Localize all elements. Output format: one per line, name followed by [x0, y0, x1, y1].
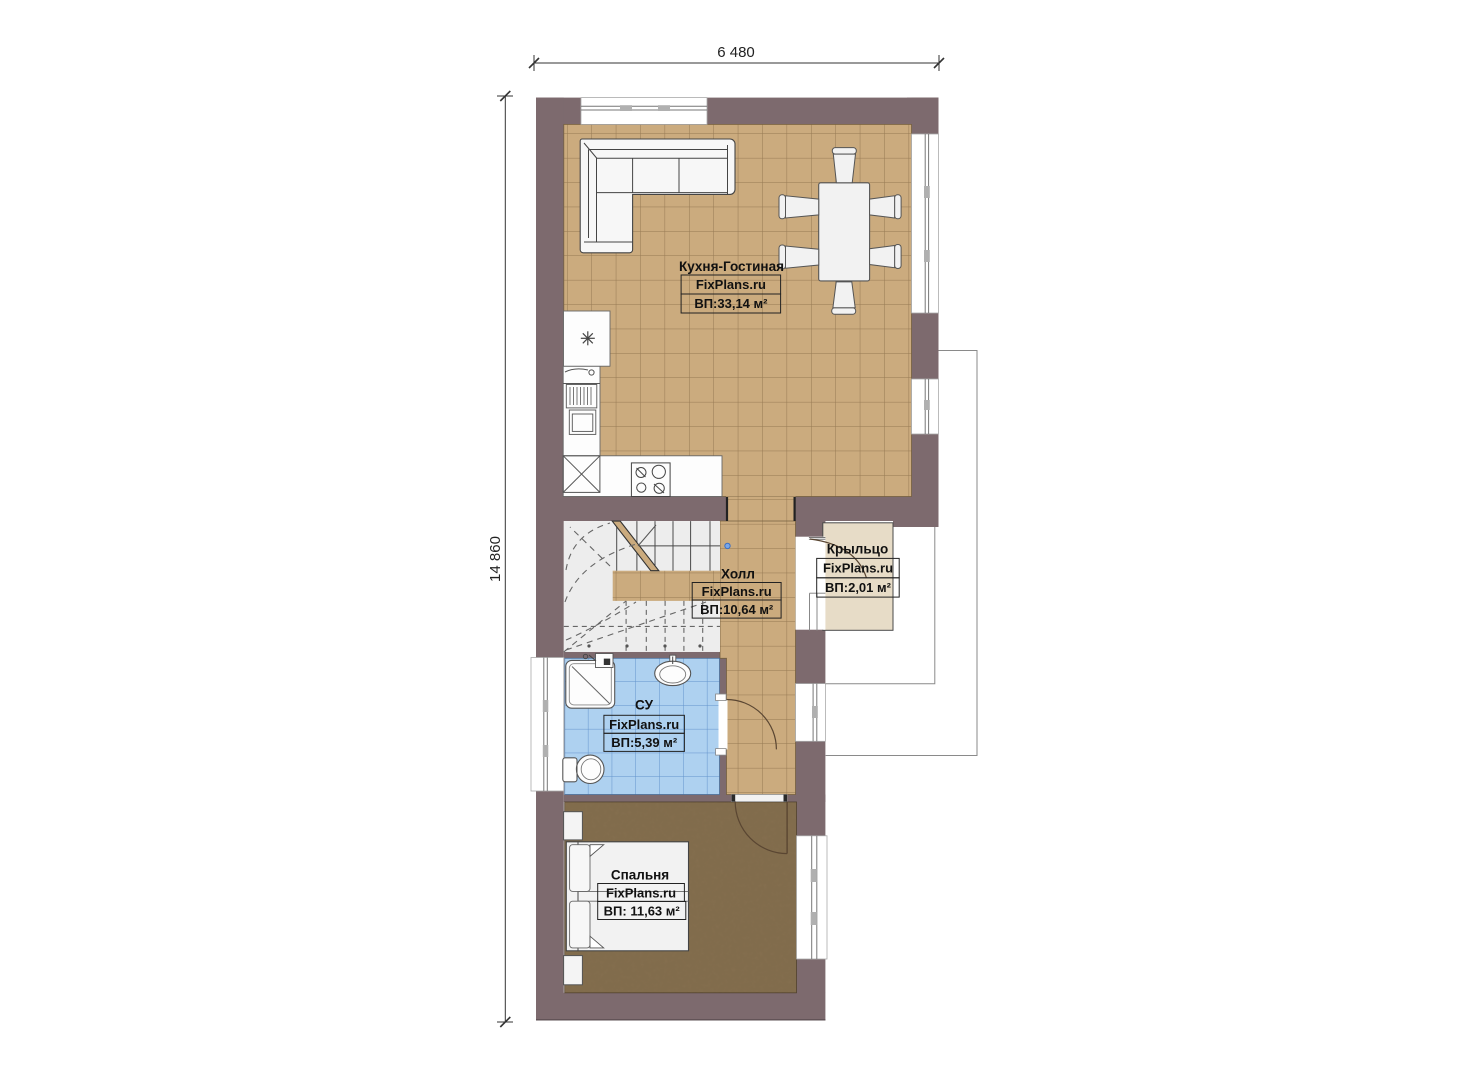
svg-text:14 860: 14 860 — [487, 536, 504, 582]
svg-text:ВП:5,39 м²: ВП:5,39 м² — [611, 735, 678, 750]
svg-text:FixPlans.ru: FixPlans.ru — [702, 584, 772, 599]
svg-text:ВП:33,14 м²: ВП:33,14 м² — [694, 296, 768, 311]
svg-text:FixPlans.ru: FixPlans.ru — [696, 277, 766, 292]
svg-text:6 480: 6 480 — [717, 44, 755, 61]
svg-text:Крыльцо: Крыльцо — [827, 542, 888, 557]
svg-text:Кухня-Гостиная: Кухня-Гостиная — [679, 259, 784, 274]
svg-text:СУ: СУ — [635, 698, 654, 713]
svg-text:ВП: 11,63 м²: ВП: 11,63 м² — [604, 904, 681, 919]
svg-text:ВП:10,64 м²: ВП:10,64 м² — [700, 602, 774, 617]
svg-text:ВП:2,01 м²: ВП:2,01 м² — [825, 580, 892, 595]
svg-text:FixPlans.ru: FixPlans.ru — [609, 717, 679, 732]
svg-text:Холл: Холл — [721, 567, 755, 582]
svg-text:FixPlans.ru: FixPlans.ru — [823, 561, 893, 576]
svg-text:FixPlans.ru: FixPlans.ru — [606, 886, 676, 901]
svg-text:Спальня: Спальня — [611, 868, 669, 883]
